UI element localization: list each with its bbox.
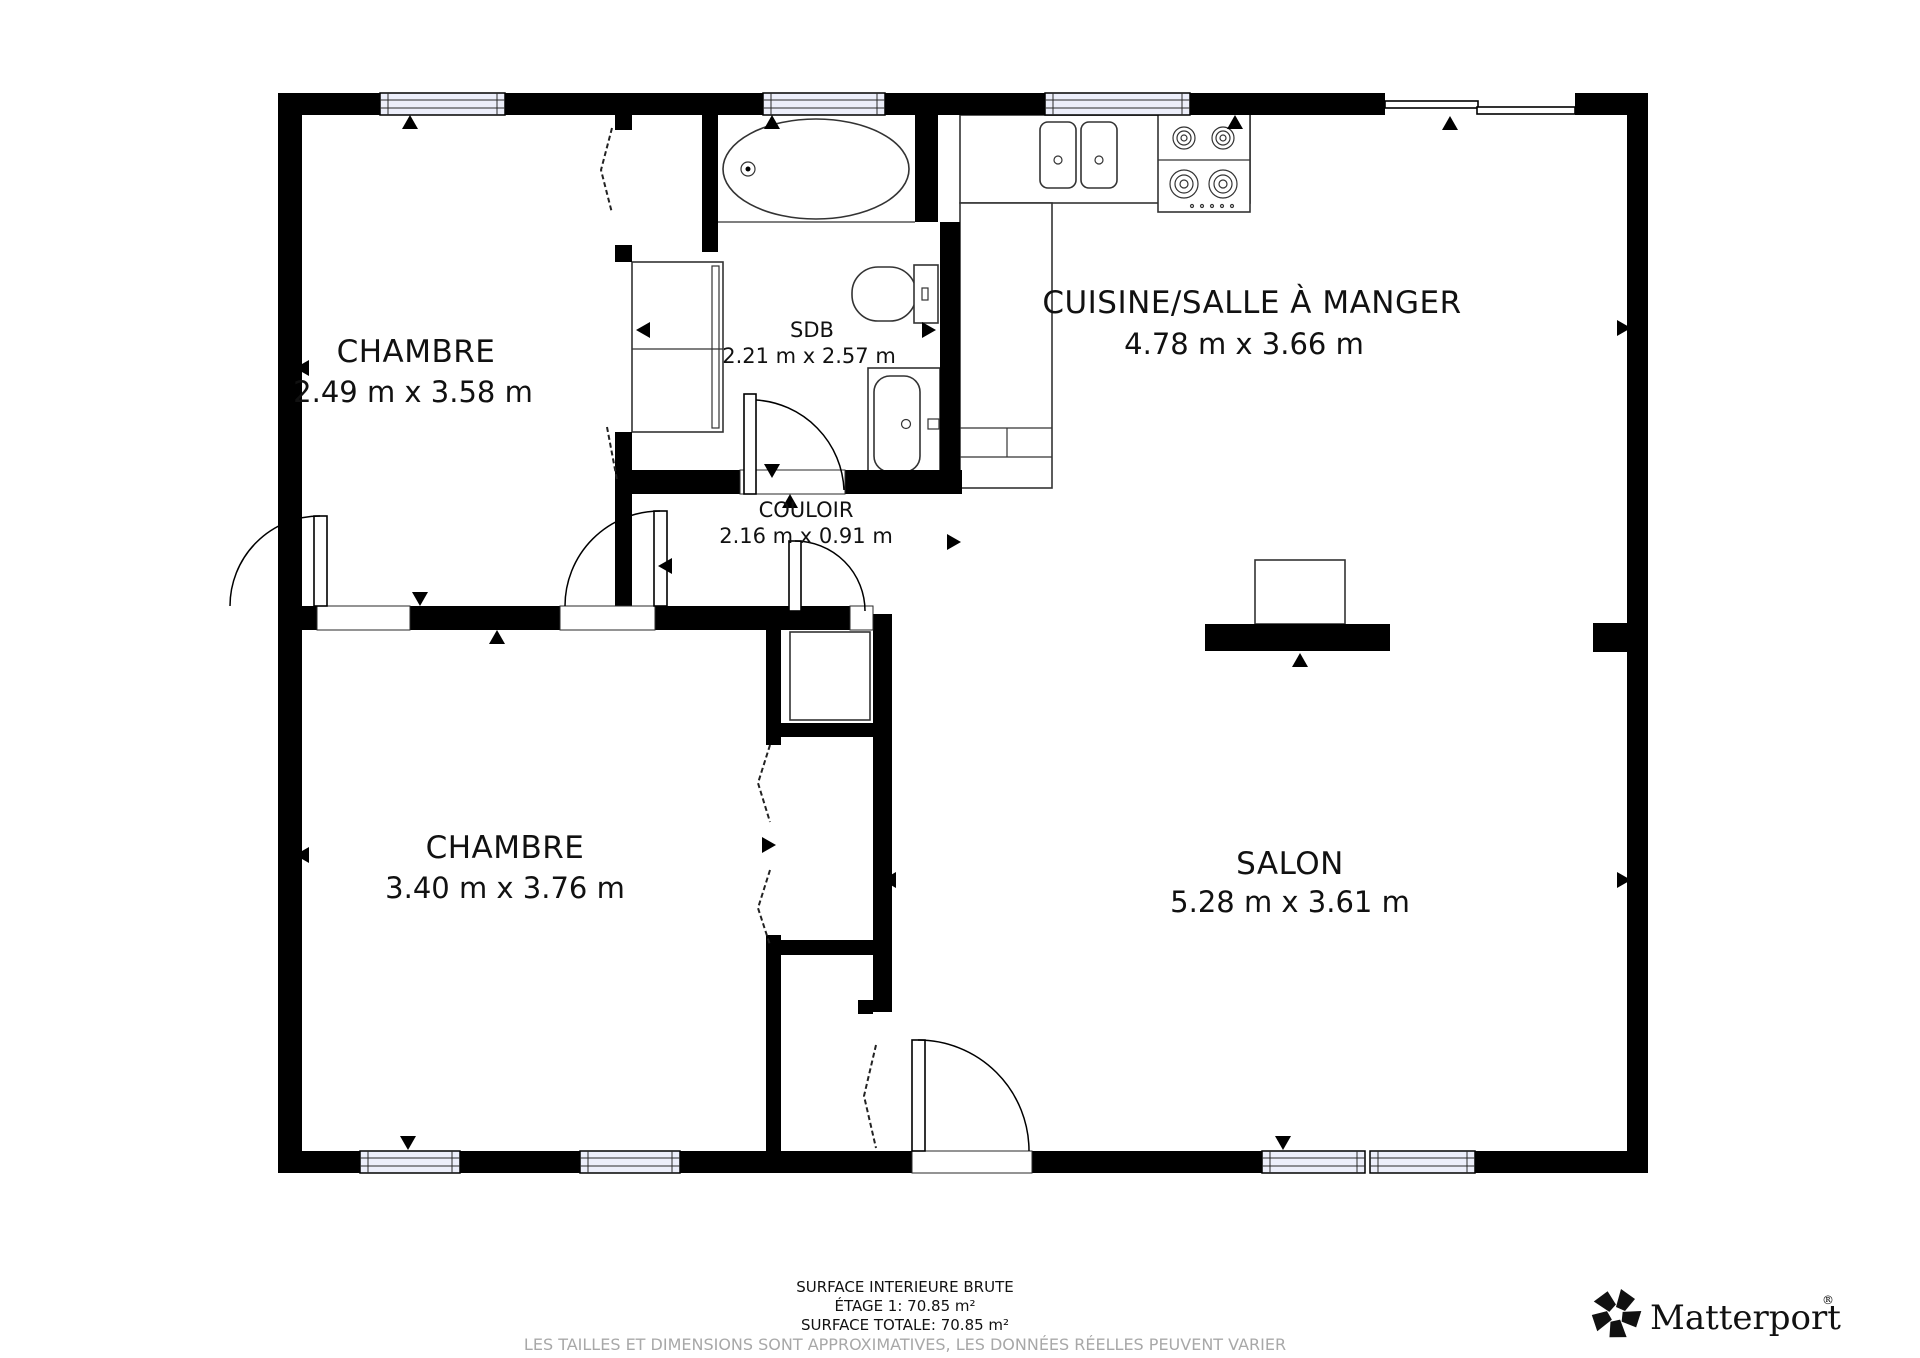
room-label: CHAMBRE xyxy=(426,830,585,866)
registered-mark: ® xyxy=(1822,1293,1834,1307)
entry-door-swing xyxy=(912,1040,1032,1173)
door-swing xyxy=(560,511,667,630)
bathtub-icon xyxy=(718,119,915,222)
footer-etage: ÉTAGE 1: 70.85 m² xyxy=(834,1296,975,1315)
footer: SURFACE INTERIEURE BRUTE ÉTAGE 1: 70.85 … xyxy=(524,1278,1286,1354)
window xyxy=(360,1151,460,1173)
matterport-logo: Matterport ® xyxy=(1586,1288,1841,1345)
room-dims: 2.16 m x 0.91 m xyxy=(719,524,893,548)
room-label: CHAMBRE xyxy=(337,334,496,370)
arrow-up-icon xyxy=(764,115,780,129)
window xyxy=(1370,1151,1475,1173)
window xyxy=(580,1151,680,1173)
arrow-down-icon xyxy=(412,592,428,606)
arrow-down-icon xyxy=(1275,1136,1291,1150)
matterport-pinwheel-icon xyxy=(1586,1288,1646,1345)
toilet-icon xyxy=(852,265,938,323)
footer-surface-brute: SURFACE INTERIEURE BRUTE xyxy=(796,1278,1013,1296)
room-dims: 3.40 m x 3.76 m xyxy=(385,871,625,905)
footer-disclaimer: LES TAILLES ET DIMENSIONS SONT APPROXIMA… xyxy=(524,1335,1286,1354)
room-dims: 2.49 m x 3.58 m xyxy=(293,375,533,409)
arrow-right-icon xyxy=(947,534,961,550)
bathroom-sink-icon xyxy=(868,368,940,480)
room-dims: 4.78 m x 3.66 m xyxy=(1124,327,1364,361)
window xyxy=(380,93,505,115)
window xyxy=(1045,93,1190,115)
arrow-right-icon xyxy=(762,837,776,853)
room-dims: 2.21 m x 2.57 m xyxy=(722,344,896,368)
sliding-door xyxy=(1385,101,1575,114)
room-dims: 5.28 m x 3.61 m xyxy=(1170,885,1410,919)
floor-plan: CHAMBRE 2.49 m x 3.58 m SDB 2.21 m x 2.5… xyxy=(0,0,1920,1358)
footer-surface-totale: SURFACE TOTALE: 70.85 m² xyxy=(801,1316,1009,1334)
window xyxy=(1262,1151,1365,1173)
window xyxy=(763,93,885,115)
kitchen-appliance-icon xyxy=(1255,560,1345,624)
wardrobe-icon xyxy=(632,262,723,432)
room-label: SALON xyxy=(1236,846,1344,882)
arrow-right-icon xyxy=(922,322,936,338)
door-swing xyxy=(740,394,845,494)
door-swing xyxy=(230,516,410,630)
hall-closet-icon xyxy=(790,617,870,720)
arrow-down-icon xyxy=(400,1136,416,1150)
matterport-wordmark: Matterport xyxy=(1650,1298,1841,1338)
room-label: CUISINE/SALLE À MANGER xyxy=(1042,285,1461,321)
room-label: SDB xyxy=(790,318,834,342)
room-label: COULOIR xyxy=(759,498,854,522)
arrow-up-icon xyxy=(402,115,418,129)
arrow-up-icon xyxy=(489,630,505,644)
arrow-up-icon xyxy=(1292,653,1308,667)
arrow-up-icon xyxy=(1442,116,1458,130)
